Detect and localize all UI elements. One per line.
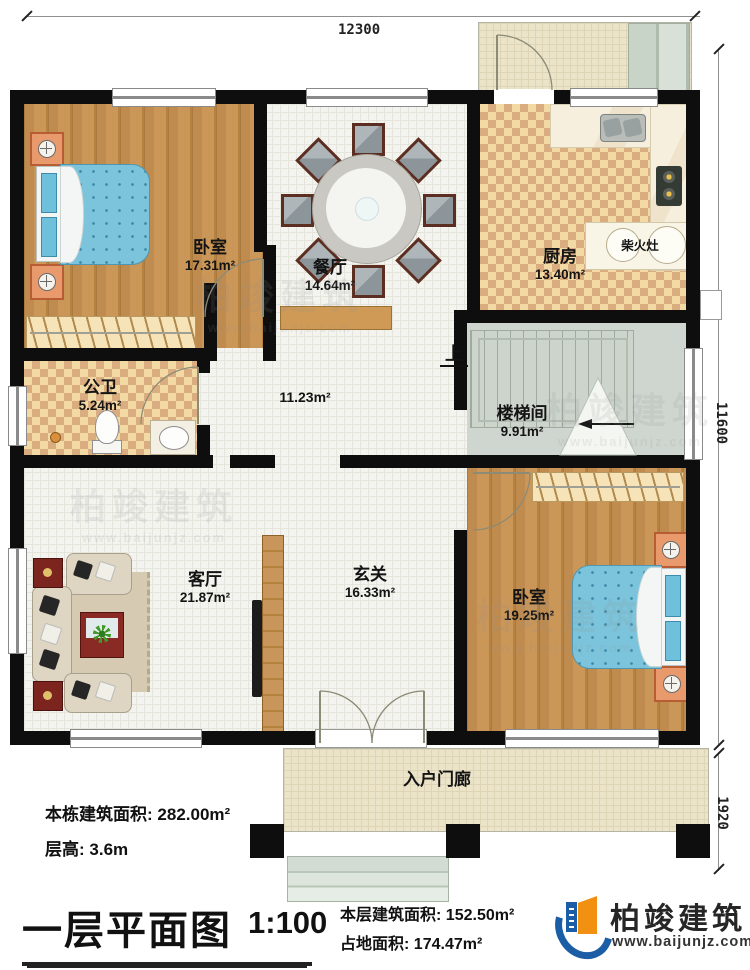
room-label-stair: 楼梯间9.91m² (462, 404, 582, 439)
tv-panel (262, 535, 284, 735)
wall (24, 348, 206, 361)
brand-name: 柏竣建筑 (610, 894, 746, 938)
nightstand (654, 532, 688, 568)
wall (467, 455, 700, 468)
dining-chair (352, 123, 385, 156)
window (570, 88, 658, 107)
dim-top-value: 12300 (338, 22, 380, 38)
room-label-kitchen: 厨房13.40m² (500, 247, 620, 282)
porch-column (250, 824, 284, 858)
sideboard (280, 306, 392, 330)
bed-headboard (36, 166, 62, 262)
wall (197, 425, 210, 468)
floor-drain (50, 432, 61, 443)
room-label-dining: 餐厅14.64m² (270, 258, 390, 293)
dining-table-center (355, 197, 379, 221)
window (8, 548, 27, 654)
window (306, 88, 428, 107)
brand-url: www.baijunjz.com (612, 934, 750, 950)
wall (254, 104, 267, 252)
wall (467, 310, 700, 323)
entry-porch-steps (287, 856, 449, 902)
gas-stove (656, 166, 682, 206)
sofa-top (66, 553, 132, 595)
land-area-line: 占地面积: 174.47m² (340, 930, 482, 954)
room-label-porch: 入户门廊 (357, 770, 517, 790)
window (684, 348, 703, 460)
dim-right-lower-value: 1920 (714, 796, 730, 830)
room-label-bedroom1: 卧室17.31m² (150, 238, 270, 273)
door-gap (494, 89, 554, 104)
dim-right-upper-value: 11600 (713, 402, 729, 444)
room-label-foyer: 玄关16.33m² (310, 565, 430, 600)
brand-logo: 柏竣建筑 www.baijunjz.com (556, 888, 746, 964)
wall (340, 455, 467, 468)
window (70, 729, 202, 748)
coffee-table (80, 612, 124, 658)
nightstand (30, 264, 64, 300)
entry-porch-floor (283, 748, 709, 832)
floor-plan: 12300 11600 1920 柴火灶 (0, 0, 750, 970)
dining-chair (423, 194, 456, 227)
dim-tick (713, 43, 724, 54)
side-table (33, 558, 63, 588)
window (505, 729, 659, 748)
nightstand (654, 666, 690, 702)
brand-logo-mark (556, 892, 606, 952)
kitchen-sink (600, 114, 646, 142)
back-porch-steps (628, 23, 690, 93)
sofa-bottom (64, 673, 132, 713)
wall (10, 455, 213, 468)
wall (454, 530, 467, 731)
floor-height-line: 层高: 3.6m (45, 835, 128, 860)
window (112, 88, 216, 107)
bed-headboard (660, 568, 686, 666)
room-label-bath: 公卫5.24m² (50, 378, 150, 413)
porch-column (676, 824, 710, 858)
window (8, 386, 27, 446)
wall (230, 455, 275, 468)
dining-chair (281, 194, 314, 227)
total-area-line: 本栋建筑面积: 282.00m² (45, 800, 230, 825)
tv (252, 600, 262, 697)
dim-line-right-upper (718, 50, 719, 745)
wardrobe (26, 316, 196, 350)
dim-tick (713, 863, 724, 874)
wardrobe (532, 472, 684, 502)
wall (197, 361, 210, 373)
stairs-up-label: 上 (440, 344, 468, 367)
side-table (33, 681, 63, 711)
room-label-living: 客厅21.87m² (145, 570, 265, 605)
exterior-landing (700, 290, 722, 320)
plan-scale: 1:100 (248, 905, 327, 941)
dim-line-top (25, 16, 700, 17)
door-gap (315, 729, 427, 748)
sofa-left (32, 586, 72, 682)
porch-column (446, 824, 480, 858)
bed-sheet (636, 567, 662, 667)
room-label-hall: 11.23m² (253, 389, 357, 405)
wall (467, 104, 480, 310)
room-label-bedroom2: 卧室19.25m² (469, 588, 589, 623)
floor-area-line: 本层建筑面积: 152.50m² (340, 901, 514, 925)
bathroom-sink (150, 420, 196, 455)
toilet-bowl (95, 410, 119, 444)
nightstand (30, 132, 64, 166)
